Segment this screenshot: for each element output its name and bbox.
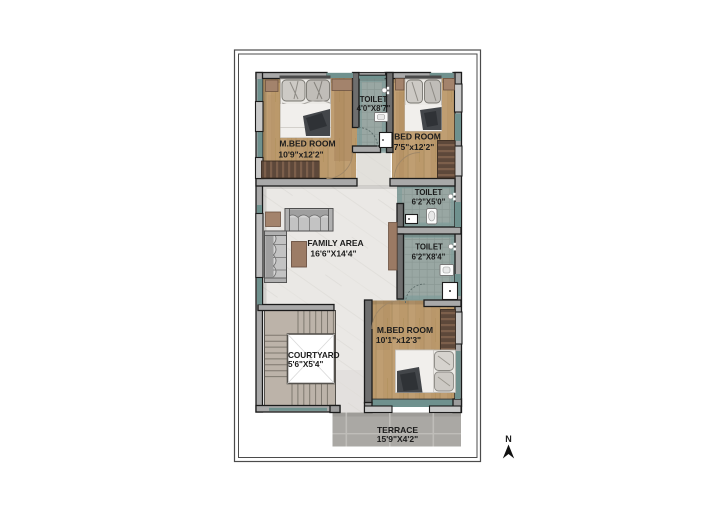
svg-text:6'2"X5'0": 6'2"X5'0"	[412, 197, 446, 206]
svg-text:M.BED ROOM: M.BED ROOM	[377, 325, 433, 335]
svg-text:15'9"X4'2": 15'9"X4'2"	[377, 434, 418, 444]
svg-text:BED ROOM: BED ROOM	[394, 132, 441, 142]
svg-text:7'5"x12'2": 7'5"x12'2"	[394, 142, 434, 152]
svg-text:TOILET: TOILET	[415, 188, 443, 197]
svg-text:6'2"X8'4": 6'2"X8'4"	[412, 252, 446, 261]
svg-text:10'9"x12'2": 10'9"x12'2"	[278, 150, 323, 160]
svg-text:N: N	[505, 434, 512, 444]
svg-text:FAMILY AREA: FAMILY AREA	[307, 238, 363, 248]
svg-text:TOILET: TOILET	[360, 95, 388, 104]
svg-text:TOILET: TOILET	[415, 242, 443, 251]
svg-text:4'0"X8'7": 4'0"X8'7"	[357, 104, 391, 113]
svg-text:16'6"X14'4": 16'6"X14'4"	[310, 248, 356, 258]
svg-text:M.BED ROOM: M.BED ROOM	[279, 139, 335, 149]
svg-text:5'6"X5'4": 5'6"X5'4"	[288, 360, 323, 369]
svg-text:10'1"x12'3": 10'1"x12'3"	[376, 335, 421, 345]
svg-text:COURTYARD: COURTYARD	[288, 351, 340, 360]
